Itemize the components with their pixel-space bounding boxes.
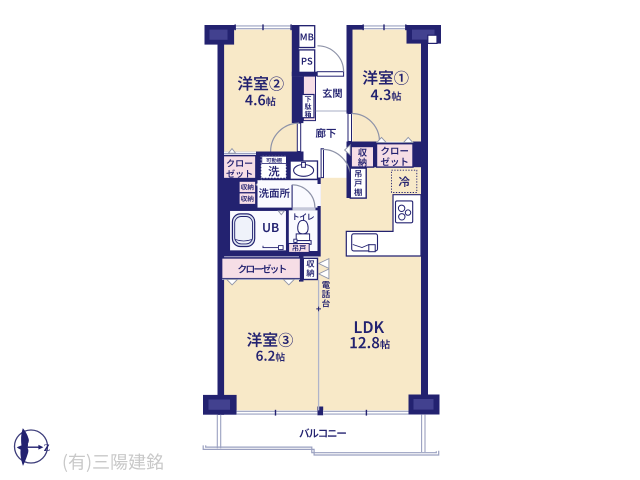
svg-text:Z: Z [44,444,50,454]
